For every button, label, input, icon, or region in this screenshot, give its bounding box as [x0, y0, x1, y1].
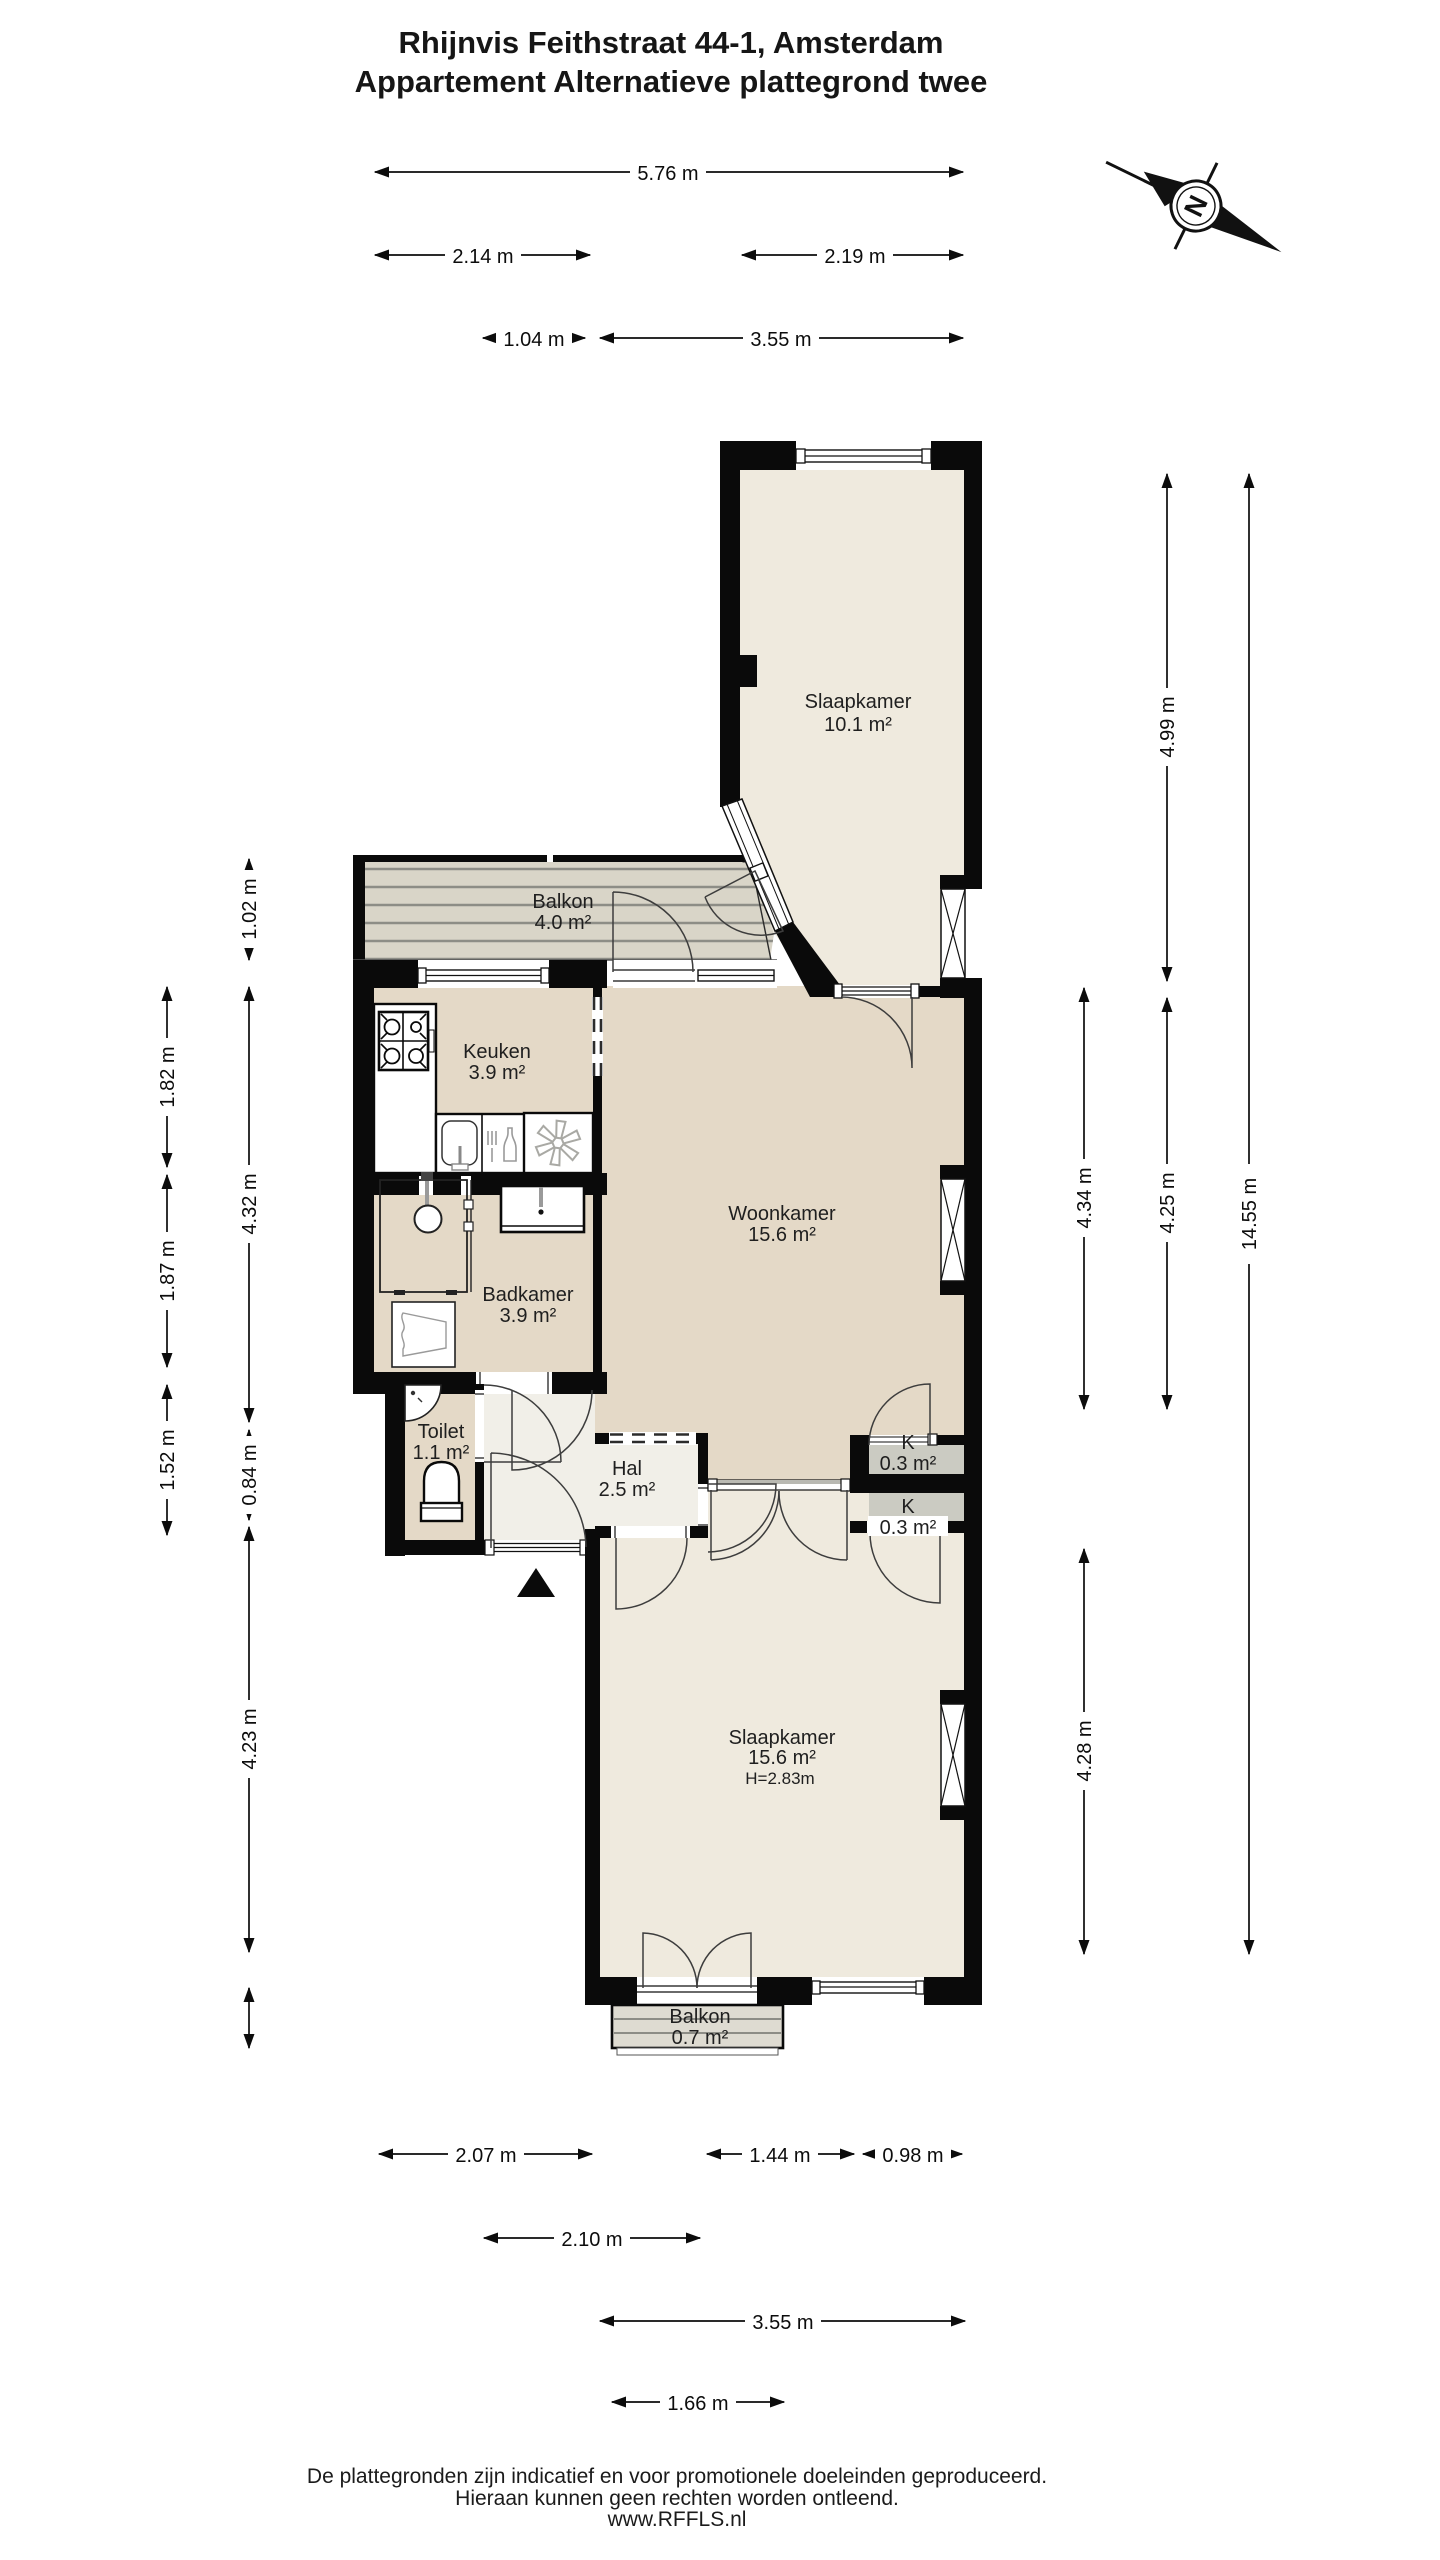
svg-text:Keuken: Keuken — [463, 1041, 531, 1063]
svg-text:Hieraan kunnen geen rechten wo: Hieraan kunnen geen rechten worden ontle… — [455, 2487, 899, 2510]
svg-text:2.14 m: 2.14 m — [452, 246, 513, 268]
svg-text:Balkon: Balkon — [669, 2006, 730, 2028]
svg-text:Rhijnvis Feithstraat 44-1, Ams: Rhijnvis Feithstraat 44-1, Amsterdam — [399, 25, 944, 60]
svg-text:1.44 m: 1.44 m — [749, 2145, 810, 2167]
svg-text:0.3 m²: 0.3 m² — [880, 1517, 937, 1539]
svg-text:2.19 m: 2.19 m — [824, 246, 885, 268]
svg-text:Balkon: Balkon — [532, 891, 593, 913]
svg-text:Slaapkamer: Slaapkamer — [729, 1727, 836, 1749]
svg-text:Appartement Alternatieve platt: Appartement Alternatieve plattegrond twe… — [355, 64, 988, 99]
svg-text:15.6 m²: 15.6 m² — [748, 1747, 816, 1769]
svg-text:3.9 m²: 3.9 m² — [500, 1305, 557, 1327]
svg-text:1.66 m: 1.66 m — [667, 2393, 728, 2415]
svg-text:3.55 m: 3.55 m — [752, 2312, 813, 2334]
svg-text:2.07 m: 2.07 m — [455, 2145, 516, 2167]
svg-text:15.6 m²: 15.6 m² — [748, 1224, 816, 1246]
svg-text:De plattegronden zijn indicati: De plattegronden zijn indicatief en voor… — [307, 2465, 1047, 2488]
svg-text:1.02 m: 1.02 m — [239, 878, 261, 939]
svg-text:Slaapkamer: Slaapkamer — [805, 691, 912, 713]
svg-text:K: K — [901, 1496, 915, 1518]
svg-text:0.7 m²: 0.7 m² — [672, 2027, 729, 2049]
svg-text:4.23 m: 4.23 m — [239, 1708, 261, 1769]
svg-text:K: K — [901, 1432, 915, 1454]
svg-text:4.28 m: 4.28 m — [1074, 1720, 1096, 1781]
svg-text:Badkamer: Badkamer — [482, 1284, 573, 1306]
svg-text:4.34 m: 4.34 m — [1074, 1167, 1096, 1228]
svg-text:2.5 m²: 2.5 m² — [599, 1479, 656, 1501]
svg-text:Woonkamer: Woonkamer — [728, 1203, 836, 1225]
svg-text:2.10 m: 2.10 m — [561, 2229, 622, 2251]
svg-text:Hal: Hal — [612, 1458, 642, 1480]
svg-text:0.3 m²: 0.3 m² — [880, 1453, 937, 1475]
svg-text:3.55 m: 3.55 m — [750, 329, 811, 351]
svg-text:www.RFFLS.nl: www.RFFLS.nl — [607, 2508, 747, 2531]
svg-text:5.76 m: 5.76 m — [637, 163, 698, 185]
svg-text:1.82 m: 1.82 m — [157, 1046, 179, 1107]
svg-text:4.0 m²: 4.0 m² — [535, 912, 592, 934]
svg-text:4.32 m: 4.32 m — [239, 1173, 261, 1234]
svg-text:4.25 m: 4.25 m — [1157, 1172, 1179, 1233]
svg-text:1.1 m²: 1.1 m² — [413, 1442, 470, 1464]
svg-text:0.84 m: 0.84 m — [239, 1444, 261, 1505]
svg-text:14.55 m: 14.55 m — [1239, 1178, 1261, 1250]
svg-text:Toilet: Toilet — [418, 1421, 465, 1443]
svg-text:1.87 m: 1.87 m — [157, 1240, 179, 1301]
svg-text:H=2.83m: H=2.83m — [745, 1769, 814, 1788]
svg-text:10.1 m²: 10.1 m² — [824, 714, 892, 736]
svg-text:4.99 m: 4.99 m — [1157, 696, 1179, 757]
svg-text:3.9 m²: 3.9 m² — [469, 1062, 526, 1084]
svg-text:1.04 m: 1.04 m — [503, 329, 564, 351]
svg-text:0.98 m: 0.98 m — [882, 2145, 943, 2167]
svg-text:1.52 m: 1.52 m — [157, 1429, 179, 1490]
